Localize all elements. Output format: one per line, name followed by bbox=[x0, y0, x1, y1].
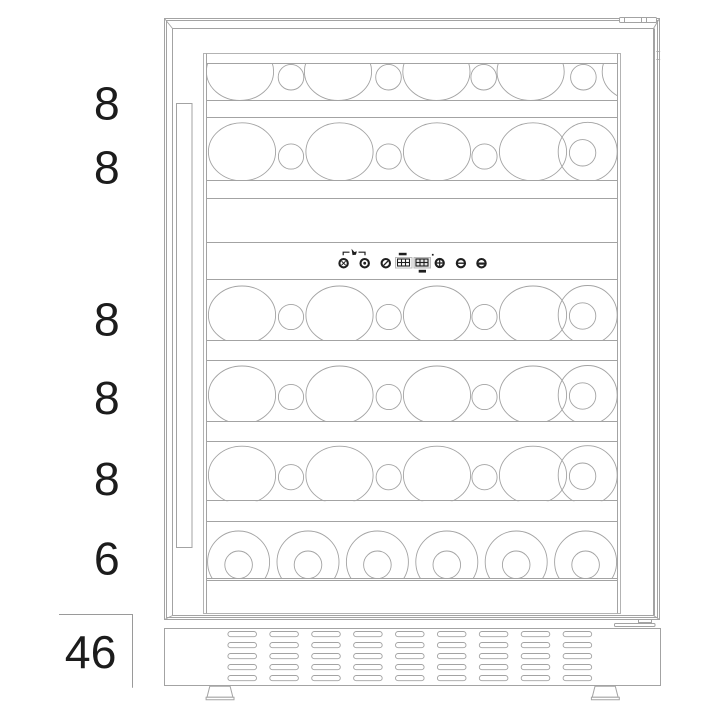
svg-text:8: 8 bbox=[94, 453, 120, 505]
svg-text:8: 8 bbox=[94, 142, 120, 194]
svg-text:8: 8 bbox=[94, 372, 120, 424]
svg-text:46: 46 bbox=[65, 626, 117, 678]
svg-text:8: 8 bbox=[94, 294, 120, 346]
svg-text:8: 8 bbox=[94, 78, 120, 130]
svg-text:6: 6 bbox=[94, 533, 120, 585]
